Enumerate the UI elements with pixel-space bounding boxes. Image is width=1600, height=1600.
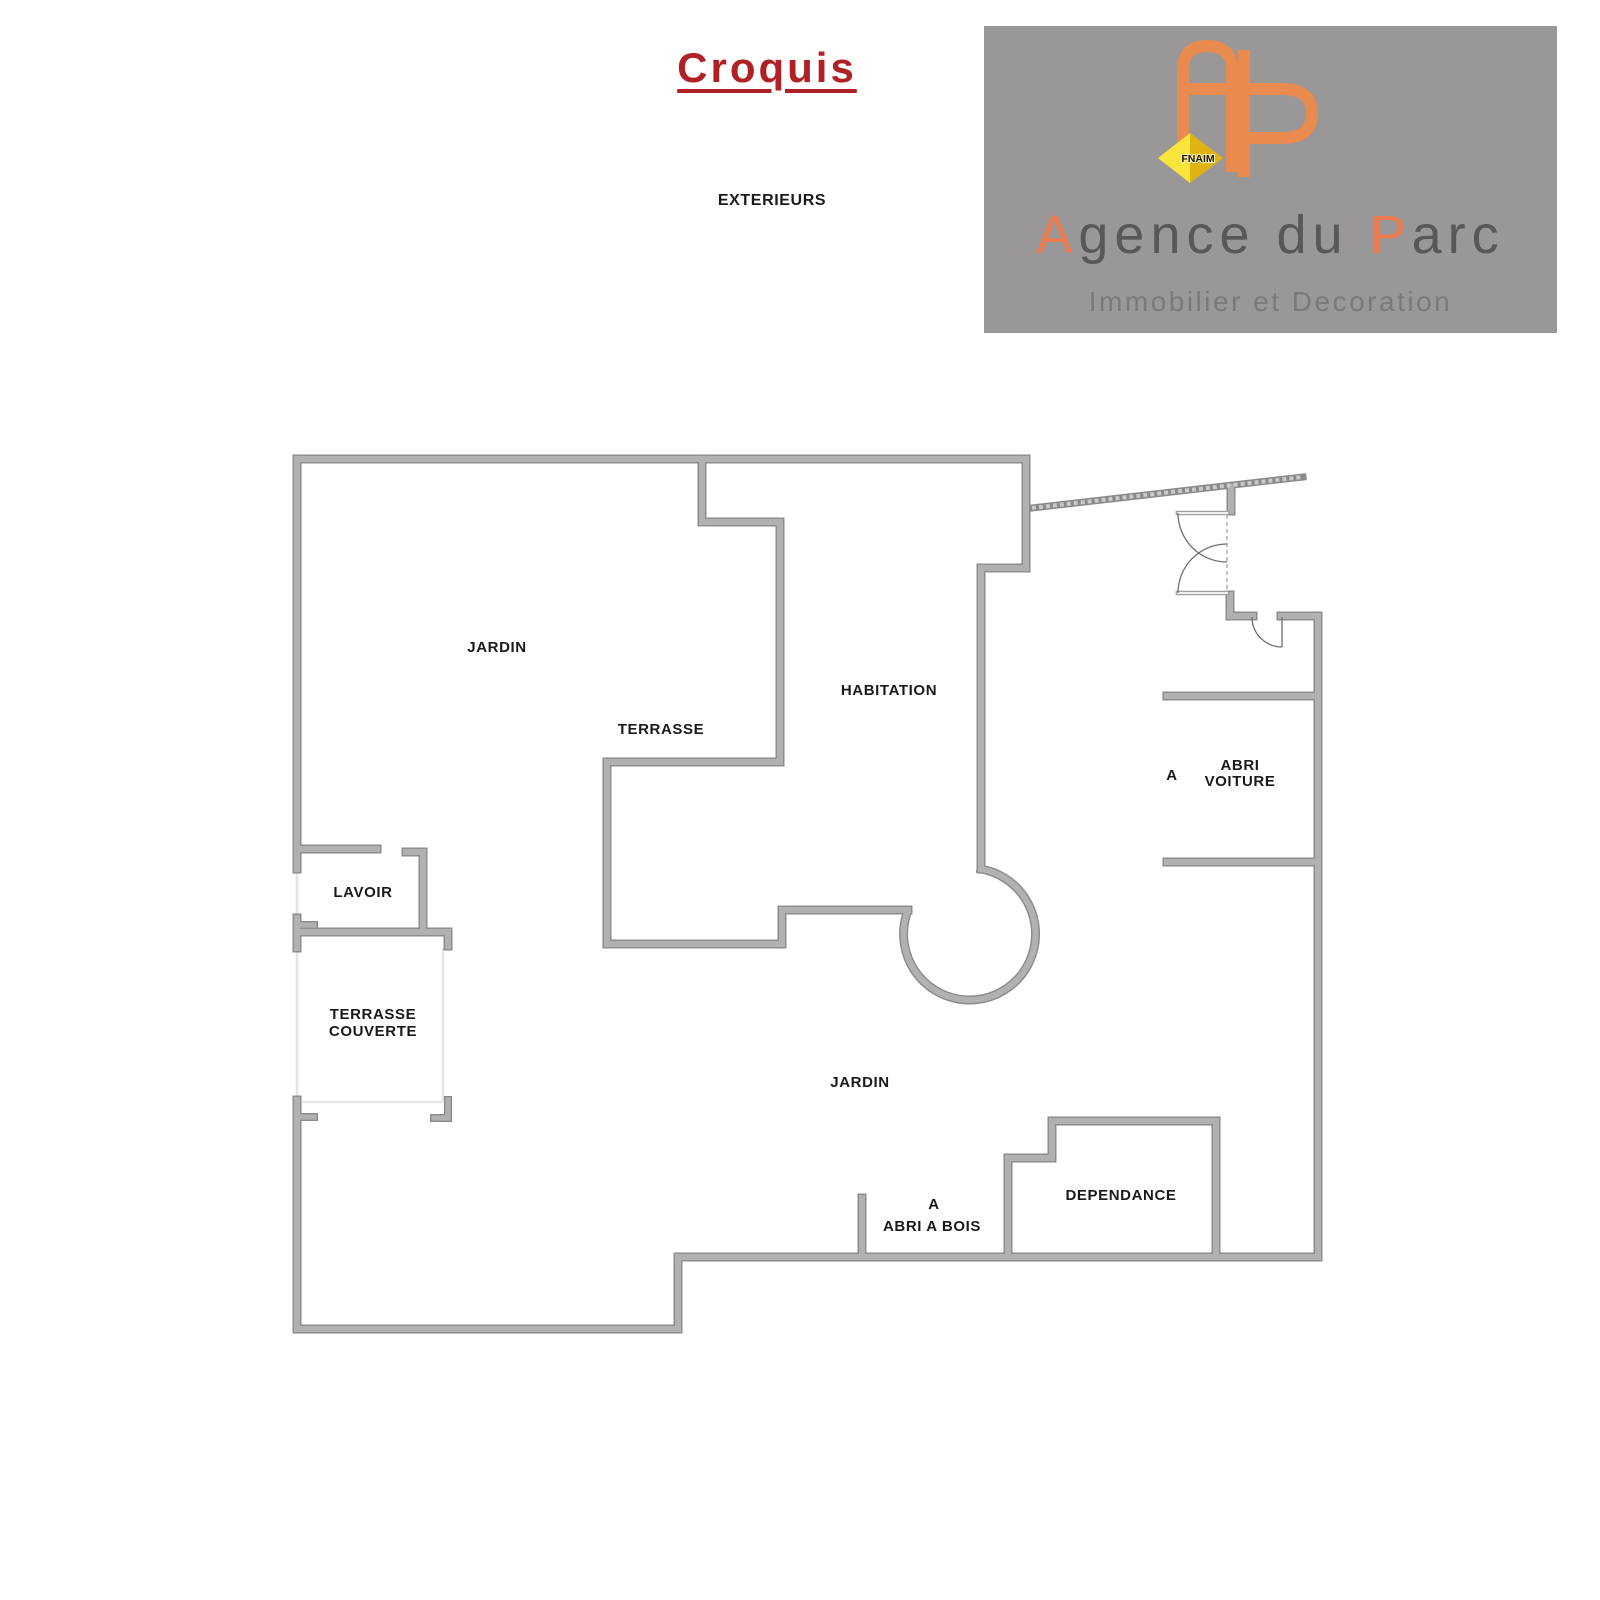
agency-subtitle: Immobilier et Decoration (984, 288, 1557, 316)
label-abri-a-bois-a: A (928, 1196, 939, 1213)
label-exterieurs: EXTERIEURS (718, 192, 826, 209)
door-swing-arc (1178, 544, 1227, 593)
fnaim-badge-label: FNAIM (1181, 153, 1214, 165)
label-abri-voiture-a: A (1166, 767, 1177, 784)
label-terrasse-couverte-1: TERRASSE (330, 1006, 416, 1023)
label-terrasse: TERRASSE (618, 721, 704, 738)
label-jardin-sud: JARDIN (830, 1074, 889, 1091)
label-dependance: DEPENDANCE (1065, 1187, 1176, 1204)
brand-part: gence du (1078, 205, 1369, 265)
label-lavoir: LAVOIR (333, 884, 392, 901)
agency-logo: FNAIM Agence du Parc Immobilier et Decor… (984, 26, 1557, 333)
page-title: Croquis (677, 44, 857, 92)
door-swing-arc (1252, 617, 1282, 647)
label-abri-voiture-2: VOITURE (1205, 773, 1276, 790)
label-abri-voiture-1: ABRI (1220, 757, 1259, 774)
label-jardin-nord: JARDIN (467, 639, 526, 656)
label-abri-a-bois: ABRI A BOIS (883, 1218, 981, 1235)
round-bay-wall-fill (904, 869, 1036, 1000)
brand-part: arc (1412, 205, 1505, 265)
door-swing-arc (1178, 513, 1227, 562)
agency-name: Agence du Parc (984, 208, 1557, 262)
croquis-page: EXTERIEURSJARDINTERRASSEHABITATIONLAVOIR… (0, 0, 1600, 1600)
label-terrasse-couverte-2: COUVERTE (329, 1023, 417, 1040)
label-habitation: HABITATION (841, 682, 937, 699)
brand-part: A (1036, 205, 1078, 265)
brand-part: P (1370, 205, 1412, 265)
